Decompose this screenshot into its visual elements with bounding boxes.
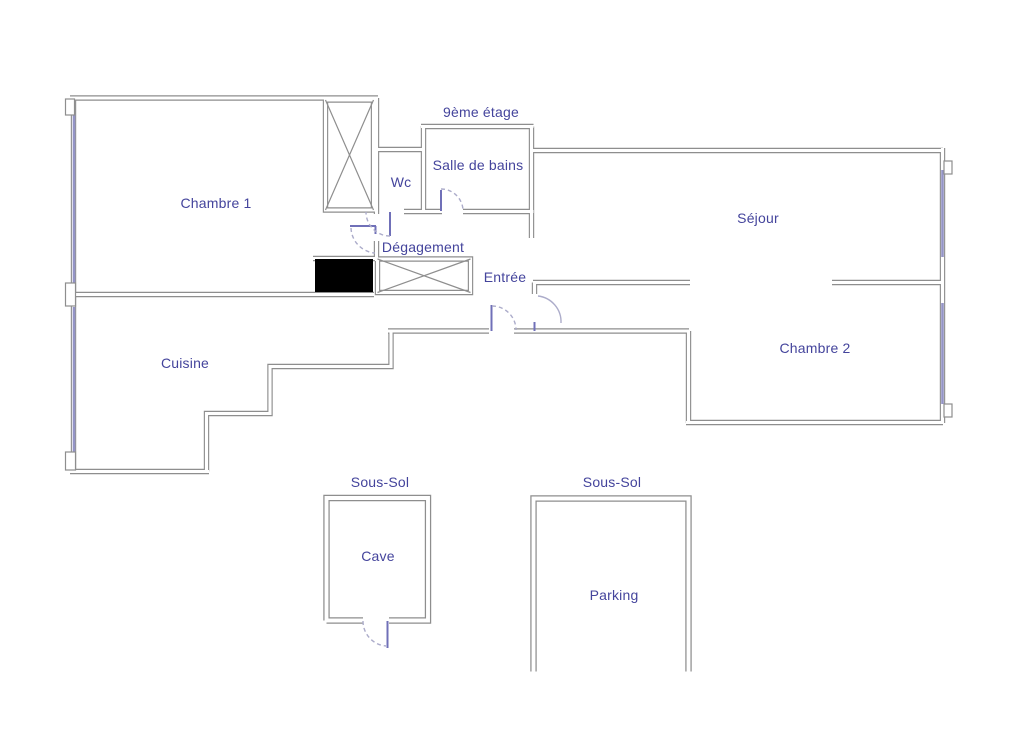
label-degagement: Dégagement: [382, 239, 464, 255]
label-salle-de-bains: Salle de bains: [433, 157, 524, 173]
label-sous-sol-cave: Sous-Sol: [351, 474, 409, 490]
label-entree: Entrée: [484, 269, 526, 285]
label-cuisine: Cuisine: [161, 355, 209, 371]
room-labels: 9ème étage Chambre 1 Wc Salle de bains D…: [161, 104, 851, 603]
sejour-door-arc: [538, 296, 561, 323]
apartment-walls: [70, 98, 943, 672]
label-cave: Cave: [361, 548, 394, 564]
label-chambre-2: Chambre 2: [779, 340, 850, 356]
label-floor: 9ème étage: [443, 104, 519, 120]
label-wc: Wc: [391, 174, 412, 190]
wall-cores: [70, 98, 943, 672]
label-chambre-1: Chambre 1: [180, 195, 251, 211]
floor-plan-page: 9ème étage Chambre 1 Wc Salle de bains D…: [0, 0, 1020, 753]
duct-box: [315, 259, 373, 292]
label-sous-sol-parking: Sous-Sol: [583, 474, 641, 490]
floor-plan-canvas: 9ème étage Chambre 1 Wc Salle de bains D…: [0, 0, 1020, 753]
label-parking: Parking: [590, 587, 639, 603]
label-sejour: Séjour: [737, 210, 779, 226]
